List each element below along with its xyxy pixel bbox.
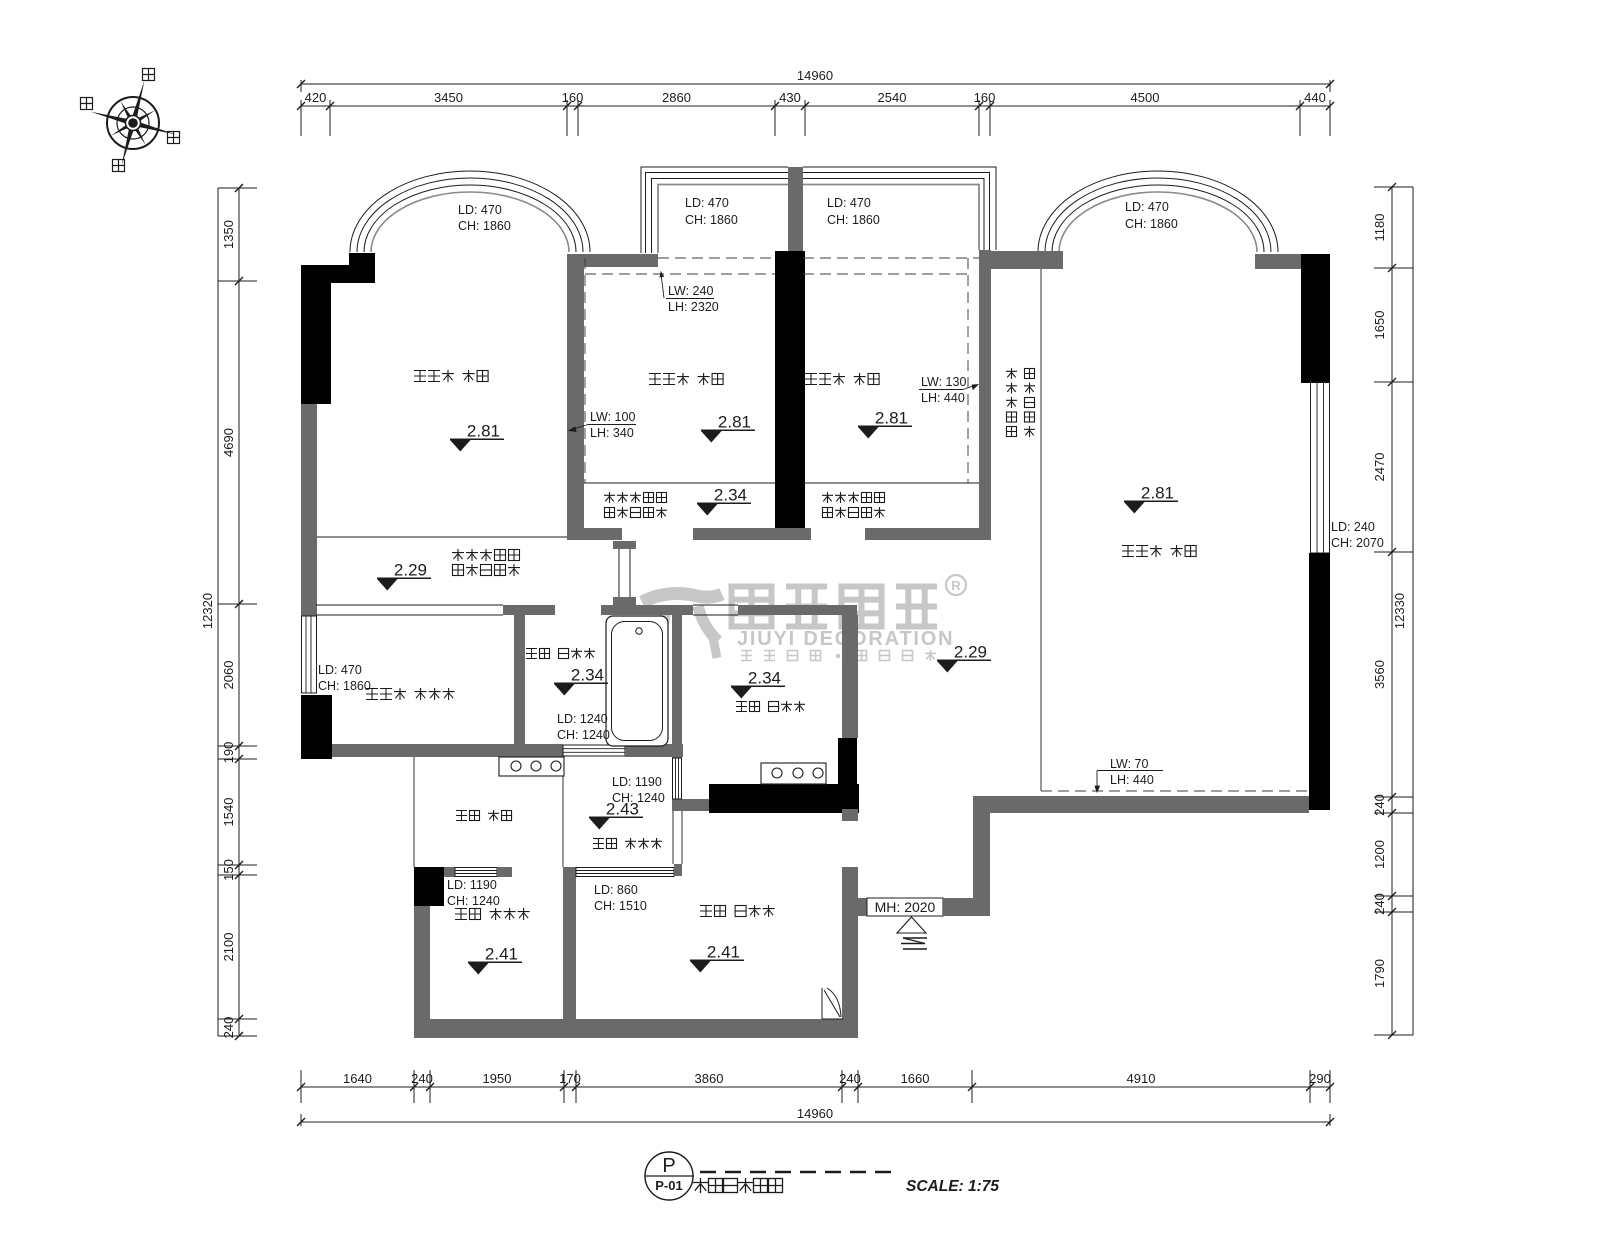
- svg-text:LD: 470: LD: 470: [685, 196, 729, 210]
- svg-text:1200: 1200: [1372, 840, 1387, 869]
- svg-text:LW: 130: LW: 130: [921, 375, 966, 389]
- svg-text:430: 430: [779, 90, 801, 105]
- svg-text:160: 160: [562, 90, 584, 105]
- svg-text:3450: 3450: [434, 90, 463, 105]
- svg-text:CH: 1860: CH: 1860: [318, 679, 371, 693]
- svg-text:1790: 1790: [1372, 959, 1387, 988]
- svg-text:CH: 1240: CH: 1240: [557, 728, 610, 742]
- svg-text:2.41: 2.41: [485, 945, 518, 964]
- svg-text:LD: 860: LD: 860: [594, 883, 638, 897]
- svg-text:2.81: 2.81: [875, 409, 908, 428]
- svg-text:2100: 2100: [221, 933, 236, 962]
- svg-text:LW: 70: LW: 70: [1110, 757, 1148, 771]
- svg-text:2.34: 2.34: [714, 486, 747, 505]
- svg-text:P-01: P-01: [655, 1178, 682, 1193]
- svg-text:CH: 1510: CH: 1510: [594, 899, 647, 913]
- svg-text:CH: 1860: CH: 1860: [827, 213, 880, 227]
- svg-text:2.41: 2.41: [707, 943, 740, 962]
- svg-text:2060: 2060: [221, 661, 236, 690]
- svg-text:CH: 1860: CH: 1860: [1125, 217, 1178, 231]
- svg-text:LW: 100: LW: 100: [590, 410, 635, 424]
- svg-text:160: 160: [974, 90, 996, 105]
- svg-text:12320: 12320: [200, 593, 215, 629]
- svg-text:240: 240: [221, 1017, 236, 1039]
- svg-text:12330: 12330: [1392, 593, 1407, 629]
- svg-text:2470: 2470: [1372, 453, 1387, 482]
- svg-text:190: 190: [221, 742, 236, 764]
- svg-text:2860: 2860: [662, 90, 691, 105]
- svg-text:LD: 470: LD: 470: [318, 663, 362, 677]
- svg-text:LD: 240: LD: 240: [1331, 520, 1375, 534]
- svg-text:SCALE: 1:75: SCALE: 1:75: [906, 1178, 999, 1195]
- svg-text:CH: 1240: CH: 1240: [447, 894, 500, 908]
- svg-text:240: 240: [1372, 893, 1387, 915]
- svg-text:290: 290: [1309, 1071, 1331, 1086]
- svg-text:170: 170: [559, 1071, 581, 1086]
- svg-text:4910: 4910: [1127, 1071, 1156, 1086]
- svg-text:3860: 3860: [695, 1071, 724, 1086]
- svg-text:14960: 14960: [797, 68, 833, 83]
- svg-text:2.34: 2.34: [571, 666, 604, 685]
- svg-text:1640: 1640: [343, 1071, 372, 1086]
- svg-text:240: 240: [1372, 794, 1387, 816]
- svg-text:LD: 470: LD: 470: [458, 203, 502, 217]
- svg-text:14960: 14960: [797, 1106, 833, 1121]
- svg-text:P: P: [662, 1155, 675, 1177]
- svg-text:LH: 440: LH: 440: [921, 391, 965, 405]
- svg-text:LH: 440: LH: 440: [1110, 773, 1154, 787]
- svg-text:CH: 2070: CH: 2070: [1331, 536, 1384, 550]
- svg-text:150: 150: [221, 859, 236, 881]
- svg-text:LD: 1190: LD: 1190: [447, 878, 497, 892]
- svg-text:240: 240: [411, 1071, 433, 1086]
- svg-text:1350: 1350: [221, 220, 236, 249]
- svg-text:2.81: 2.81: [718, 413, 751, 432]
- svg-text:1180: 1180: [1372, 214, 1387, 242]
- svg-text:4690: 4690: [221, 428, 236, 457]
- svg-text:1650: 1650: [1372, 311, 1387, 340]
- svg-text:LD: 1190: LD: 1190: [612, 775, 662, 789]
- svg-text:2.81: 2.81: [467, 422, 500, 441]
- svg-text:LW: 240: LW: 240: [668, 284, 713, 298]
- svg-text:1950: 1950: [483, 1071, 512, 1086]
- svg-text:CH: 1860: CH: 1860: [685, 213, 738, 227]
- svg-text:2540: 2540: [878, 90, 907, 105]
- svg-text:420: 420: [305, 90, 327, 105]
- svg-text:2.34: 2.34: [748, 669, 781, 688]
- svg-text:CH: 1860: CH: 1860: [458, 219, 511, 233]
- svg-text:LD: 1240: LD: 1240: [557, 712, 608, 726]
- svg-text:3560: 3560: [1372, 660, 1387, 689]
- svg-text:CH: 1240: CH: 1240: [612, 791, 665, 805]
- svg-text:LH: 2320: LH: 2320: [668, 300, 719, 314]
- svg-text:2.81: 2.81: [1141, 484, 1174, 503]
- svg-text:2.29: 2.29: [954, 643, 987, 662]
- svg-text:1540: 1540: [221, 798, 236, 827]
- svg-text:LH: 340: LH: 340: [590, 426, 634, 440]
- svg-text:LD: 470: LD: 470: [1125, 200, 1169, 214]
- svg-text:1660: 1660: [901, 1071, 930, 1086]
- svg-text:2.29: 2.29: [394, 561, 427, 580]
- svg-text:LD: 470: LD: 470: [827, 196, 871, 210]
- svg-text:240: 240: [839, 1071, 861, 1086]
- svg-text:MH: 2020: MH: 2020: [875, 899, 936, 915]
- svg-text:R: R: [951, 578, 961, 593]
- svg-text:440: 440: [1304, 90, 1326, 105]
- svg-text:4500: 4500: [1131, 90, 1160, 105]
